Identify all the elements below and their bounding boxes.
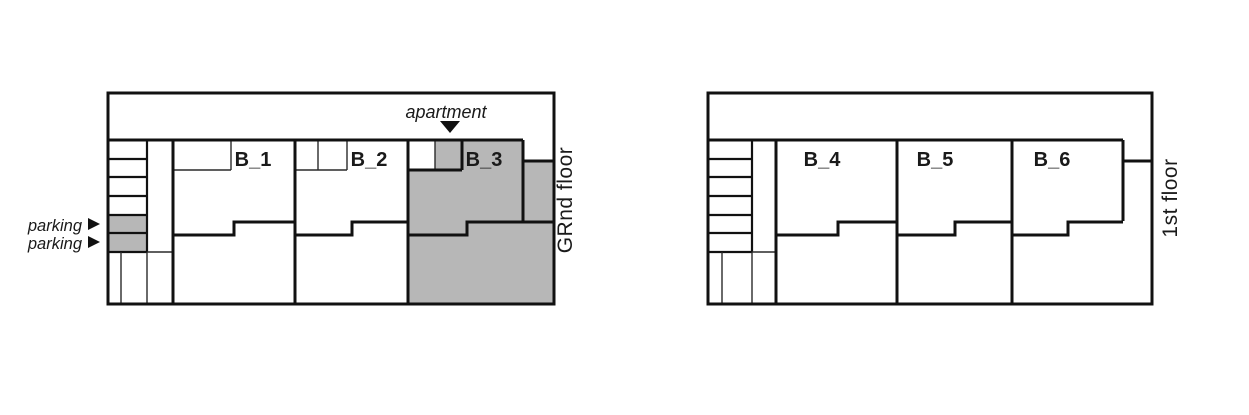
plans-svg: apartment parking parking B_1 B_2 B_3 GR… [0, 0, 1249, 415]
parking-cell-1 [108, 215, 147, 233]
parking-arrow-icon-1 [88, 218, 100, 230]
floor-plan-diagram: apartment parking parking B_1 B_2 B_3 GR… [0, 0, 1249, 415]
unit-label-b1: B_1 [235, 149, 272, 171]
stairwell-lines-first [708, 140, 752, 252]
unit-label-b3: B_3 [466, 149, 503, 171]
ground-floor-title: GRnd floor [554, 147, 577, 254]
parking-label-2: parking [27, 235, 83, 253]
unit-label-b5: B_5 [917, 149, 954, 171]
apartment-cell-highlight [435, 140, 462, 170]
unit-label-b2: B_2 [351, 149, 388, 171]
parking-arrow-icon-2 [88, 236, 100, 248]
ground-floor-plan: apartment parking parking B_1 B_2 B_3 GR… [27, 93, 577, 304]
parking-cell-2 [108, 233, 147, 252]
unit-label-b4: B_4 [804, 149, 842, 171]
first-floor-title: 1st floor [1159, 158, 1182, 237]
first-floor-plan: B_4 B_5 B_6 1st floor [708, 93, 1182, 304]
parking-label-1: parking [27, 217, 83, 235]
apartment-arrow-icon [440, 121, 460, 133]
partition-lines-first [722, 252, 776, 304]
unit-label-b6: B_6 [1034, 149, 1071, 171]
apartment-label: apartment [405, 102, 487, 122]
